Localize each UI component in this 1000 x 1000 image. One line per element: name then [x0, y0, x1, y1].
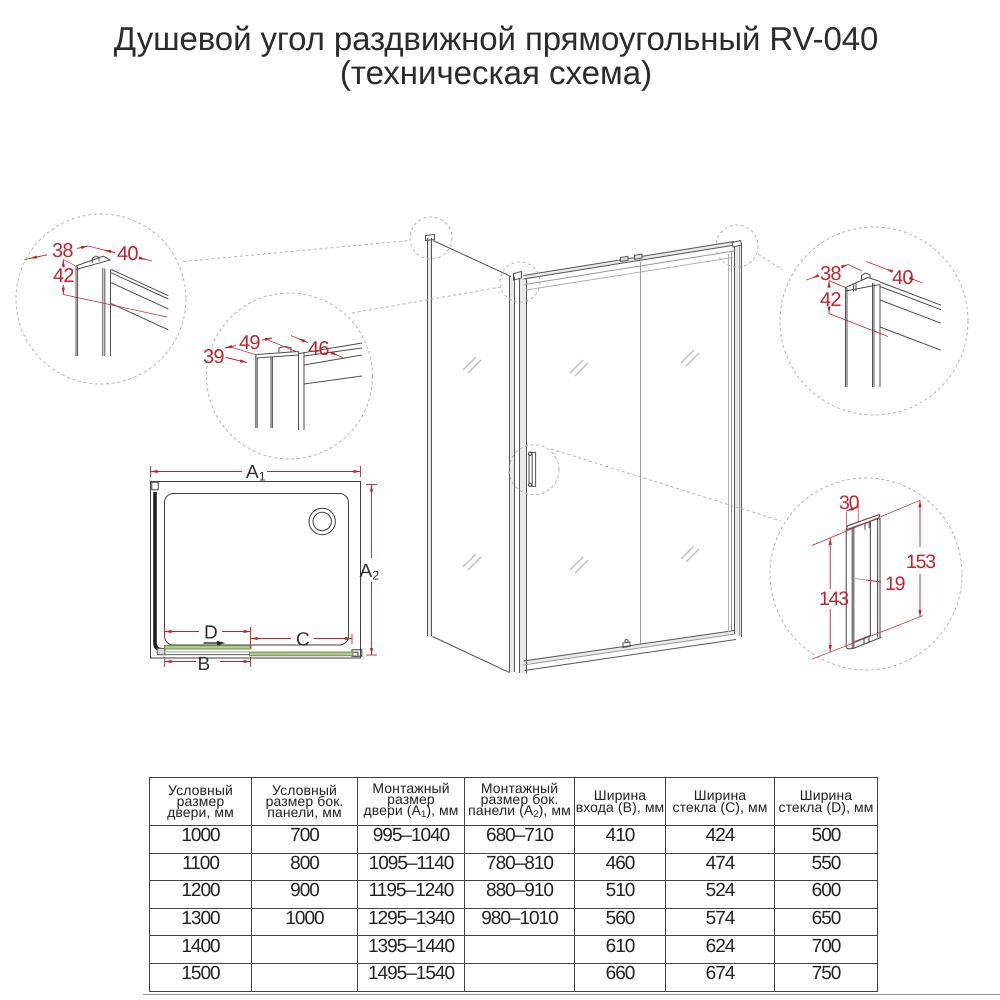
svg-text:A2: A2 [360, 561, 380, 583]
svg-text:153: 153 [906, 551, 935, 573]
svg-text:C: C [296, 630, 310, 651]
svg-text:19: 19 [885, 573, 905, 595]
svg-text:A1: A1 [246, 462, 266, 484]
svg-text:143: 143 [819, 588, 848, 610]
svg-text:49: 49 [239, 332, 260, 354]
svg-text:40: 40 [892, 267, 913, 289]
svg-text:42: 42 [53, 265, 74, 287]
svg-text:39: 39 [203, 346, 224, 368]
svg-text:42: 42 [820, 289, 841, 311]
svg-text:38: 38 [52, 240, 73, 262]
svg-text:D: D [204, 623, 218, 644]
svg-text:38: 38 [820, 263, 841, 285]
svg-text:30: 30 [839, 492, 860, 514]
svg-text:40: 40 [117, 243, 138, 265]
svg-text:B: B [198, 654, 211, 675]
svg-text:46: 46 [308, 338, 329, 360]
